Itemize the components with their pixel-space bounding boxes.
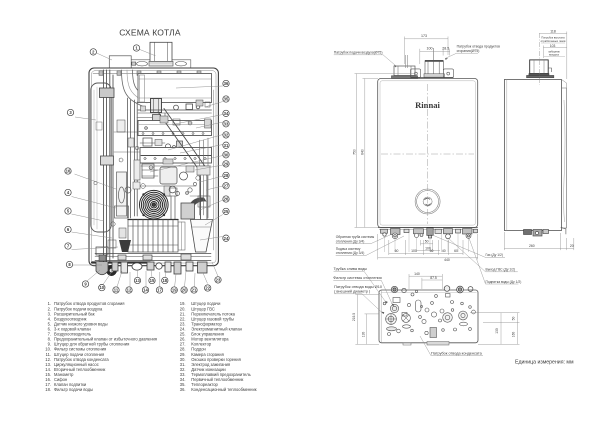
svg-text:Конденсационный теплообменник: Конденсационный теплообменник — [191, 387, 256, 392]
svg-text:50: 50 — [425, 240, 429, 244]
svg-text:103: 103 — [550, 44, 556, 48]
svg-text:130: 130 — [361, 332, 365, 338]
svg-text:130: 130 — [495, 328, 499, 334]
svg-text:Фильтр подачи воды: Фильтр подачи воды — [54, 387, 93, 392]
svg-text:36: 36 — [224, 81, 229, 86]
svg-text:СХЕМА КОТЛА: СХЕМА КОТЛА — [119, 28, 181, 38]
svg-text:24: 24 — [224, 236, 229, 241]
svg-text:20: 20 — [570, 244, 574, 248]
svg-text:Выход ГВС (Ду 1/2): Выход ГВС (Ду 1/2) — [486, 268, 516, 272]
svg-text:219.5: 219.5 — [352, 313, 356, 321]
svg-text:Подача систему: Подача систему — [336, 247, 361, 251]
svg-text:Подпитка воды (Ду 1/2): Подпитка воды (Ду 1/2) — [486, 280, 522, 284]
svg-text:отопления (Ду 3/4): отопления (Ду 3/4) — [336, 239, 365, 243]
svg-text:28: 28 — [224, 173, 229, 178]
svg-text:( внешний диаметр ): ( внешний диаметр ) — [334, 290, 371, 294]
svg-text:100: 100 — [411, 249, 417, 253]
svg-text:Газ (Ду 1/2): Газ (Ду 1/2) — [486, 253, 503, 257]
svg-text:25: 25 — [224, 209, 229, 214]
svg-text:32: 32 — [224, 133, 229, 138]
svg-text:12: 12 — [127, 288, 132, 293]
svg-text:160: 160 — [511, 332, 515, 338]
svg-text:Обратная труба системы: Обратная труба системы — [336, 235, 375, 239]
svg-text:750: 750 — [353, 149, 357, 155]
svg-text:60: 60 — [430, 249, 434, 253]
svg-text:118: 118 — [550, 30, 556, 34]
svg-text:173: 173 — [421, 34, 427, 38]
svg-text:640: 640 — [361, 149, 365, 155]
svg-text:35: 35 — [224, 97, 229, 102]
svg-text:23: 23 — [216, 278, 221, 283]
svg-text:29: 29 — [224, 162, 229, 167]
svg-text:36.: 36. — [180, 387, 186, 392]
svg-text:Фильтр системы отопления: Фильтр системы отопления — [333, 276, 381, 280]
svg-text:отработанных газов: отработанных газов — [541, 39, 566, 43]
svg-text:260: 260 — [529, 244, 535, 248]
svg-text:140: 140 — [414, 272, 420, 276]
svg-text:31: 31 — [224, 143, 229, 148]
svg-text:18: 18 — [162, 278, 167, 283]
svg-text:21: 21 — [192, 288, 197, 293]
svg-text:Патрубок отвода продуктов: Патрубок отвода продуктов — [457, 45, 501, 49]
svg-text:26: 26 — [224, 197, 229, 202]
svg-text:воздуха: воздуха — [549, 54, 559, 57]
svg-text:440: 440 — [444, 258, 450, 262]
svg-text:11: 11 — [114, 288, 119, 293]
svg-text:28.5: 28.5 — [442, 47, 449, 51]
svg-text:100: 100 — [427, 47, 433, 51]
svg-text:сгорания(Ø75): сгорания(Ø75) — [457, 49, 480, 53]
svg-text:50: 50 — [511, 317, 515, 321]
svg-text:16: 16 — [66, 169, 71, 174]
svg-text:14: 14 — [143, 288, 148, 293]
svg-text:Патрубок отвода конденсата: Патрубок отвода конденсата — [431, 351, 483, 355]
svg-text:18.: 18. — [45, 387, 51, 392]
svg-text:17: 17 — [157, 288, 162, 293]
svg-text:27: 27 — [224, 183, 229, 188]
svg-text:15: 15 — [150, 278, 155, 283]
svg-text:13: 13 — [135, 278, 140, 283]
svg-text:Трубка слива воды: Трубка слива воды — [334, 267, 368, 271]
svg-text:30: 30 — [224, 152, 229, 157]
svg-text:отопления (Ду 3/4): отопления (Ду 3/4) — [336, 251, 365, 255]
svg-text:22: 22 — [205, 286, 210, 291]
svg-text:20: 20 — [182, 288, 187, 293]
svg-text:33: 33 — [224, 121, 229, 126]
svg-text:Патрубок подачи воздуха(Ø75): Патрубок подачи воздуха(Ø75) — [334, 50, 383, 54]
svg-text:60: 60 — [454, 249, 458, 253]
svg-text:Единица измерения: мм: Единица измерения: мм — [515, 360, 574, 366]
svg-text:40: 40 — [442, 249, 446, 253]
svg-text:34: 34 — [224, 111, 229, 116]
svg-text:87.5: 87.5 — [430, 276, 437, 280]
svg-text:60: 60 — [395, 249, 399, 253]
svg-text:Патрубок отвода воды Ø10: Патрубок отвода воды Ø10 — [334, 285, 382, 289]
svg-text:19: 19 — [172, 288, 177, 293]
svg-text:10: 10 — [99, 285, 104, 290]
